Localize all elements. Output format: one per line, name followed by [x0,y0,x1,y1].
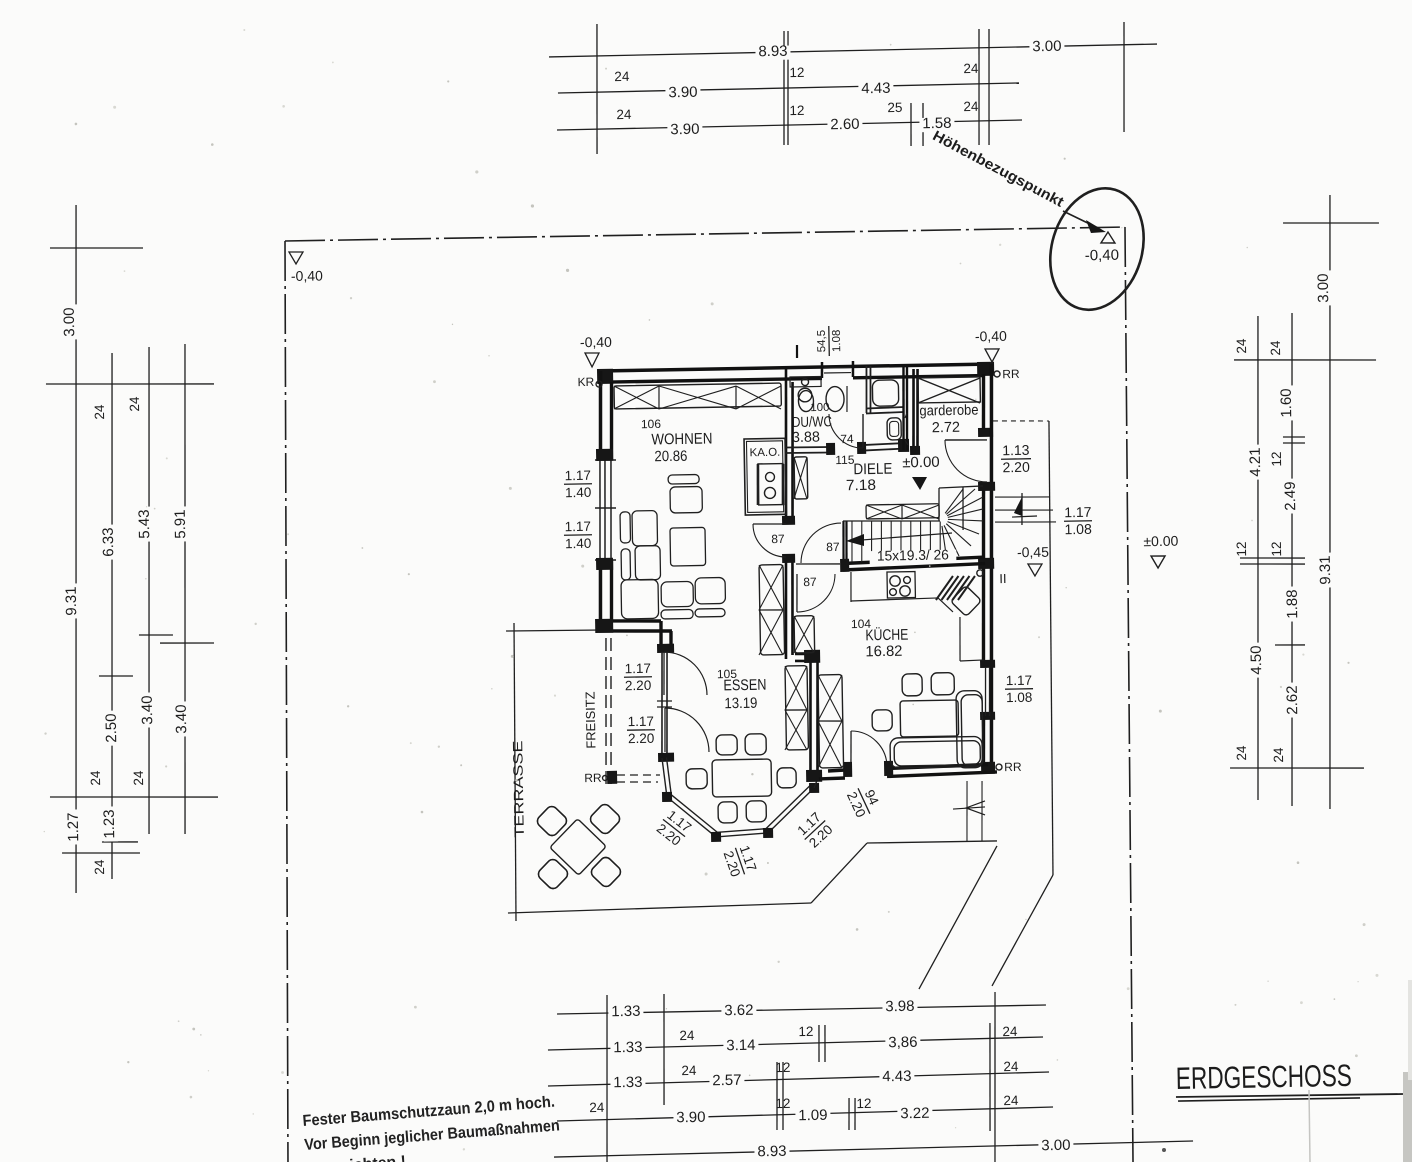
svg-text:1.17: 1.17 [1006,673,1033,688]
svg-text:1.17: 1.17 [565,519,592,534]
svg-text:24: 24 [614,69,630,84]
svg-text:74: 74 [840,432,854,446]
svg-text:6.33: 6.33 [100,527,118,556]
svg-text:20.86: 20.86 [654,448,687,466]
svg-text:24: 24 [131,770,146,786]
svg-text:54,5: 54,5 [816,330,828,353]
svg-text:1.27: 1.27 [65,812,83,841]
svg-text:-0,40: -0,40 [291,267,323,284]
svg-text:-0,45: -0,45 [1017,544,1049,561]
svg-text:KR: KR [577,375,594,389]
svg-text:106: 106 [641,417,662,431]
svg-text:24: 24 [1234,745,1249,761]
svg-text:13.19: 13.19 [724,695,757,713]
svg-text:9.31: 9.31 [1317,555,1335,584]
svg-text:TERRASSE: TERRASSE [510,740,527,837]
svg-text:3.40: 3.40 [173,704,191,733]
svg-text:87: 87 [771,532,785,546]
svg-text:3,86: 3,86 [888,1034,917,1052]
svg-text:9.31: 9.31 [63,586,81,615]
svg-text:4.21: 4.21 [1247,447,1265,476]
svg-text:1.23: 1.23 [101,809,119,838]
svg-text:3.00: 3.00 [1041,1137,1070,1155]
svg-text:24: 24 [1271,747,1286,763]
svg-text:1.88: 1.88 [1284,589,1302,618]
svg-text:2.20: 2.20 [625,678,652,693]
svg-text:15x19.3/ 26: 15x19.3/ 26 [877,546,949,563]
svg-text:3.00: 3.00 [1032,38,1061,56]
svg-text:3.40: 3.40 [139,695,157,724]
svg-text:87: 87 [826,540,840,554]
svg-text:DU/WC: DU/WC [792,414,832,431]
svg-text:1.17: 1.17 [565,468,592,483]
svg-text:25: 25 [887,100,902,115]
svg-text:1.17: 1.17 [1064,504,1092,520]
svg-text:24: 24 [1002,1024,1018,1039]
svg-text:1.17: 1.17 [625,661,652,676]
svg-text:24: 24 [616,107,632,122]
svg-text:ERDGESCHOSS: ERDGESCHOSS [1176,1058,1353,1096]
svg-text:12: 12 [856,1096,871,1111]
svg-text:-0,40: -0,40 [580,334,612,351]
svg-text:1.60: 1.60 [1278,388,1296,417]
svg-text:7.18: 7.18 [846,477,876,495]
svg-text:87: 87 [803,575,817,589]
svg-text:115: 115 [835,453,855,467]
svg-text:3.90: 3.90 [670,121,699,139]
svg-text:1.33: 1.33 [613,1039,642,1057]
svg-text:2.49: 2.49 [1282,481,1300,510]
svg-text:3.98: 3.98 [885,998,914,1016]
svg-text:2.72: 2.72 [932,420,961,436]
svg-text:KÜCHE: KÜCHE [865,626,908,645]
svg-text:12: 12 [1234,541,1249,556]
svg-text:II: II [999,571,1006,586]
svg-text:12: 12 [789,103,804,118]
svg-text:12: 12 [1269,541,1284,556]
svg-text:24: 24 [92,404,107,420]
svg-text:3.00: 3.00 [1315,273,1333,302]
svg-text:12: 12 [789,65,804,80]
svg-text:1.40: 1.40 [565,485,592,500]
svg-text:1.13: 1.13 [1002,442,1030,458]
svg-text:1.33: 1.33 [611,1003,640,1021]
svg-text:12: 12 [775,1096,790,1111]
svg-text:24: 24 [1234,338,1249,354]
svg-text:3.22: 3.22 [900,1105,929,1123]
svg-text:16.82: 16.82 [865,643,902,661]
svg-text:3.62: 3.62 [724,1002,753,1020]
svg-text:3.88: 3.88 [792,429,820,445]
svg-text:1.08: 1.08 [1064,521,1092,537]
svg-text:RR: RR [1004,760,1022,774]
svg-text:24: 24 [1268,340,1283,356]
svg-text:DIELE: DIELE [853,461,892,479]
svg-text:100: 100 [810,402,829,414]
svg-text:RR: RR [1002,367,1020,381]
svg-text:24: 24 [681,1063,697,1078]
svg-text:1.09: 1.09 [798,1107,827,1125]
svg-text:4.50: 4.50 [1248,645,1266,674]
svg-text:1.40: 1.40 [565,536,592,551]
svg-text:ESSEN: ESSEN [723,677,766,695]
svg-text:24: 24 [963,61,979,76]
svg-text:4.43: 4.43 [882,1068,911,1086]
svg-text:24: 24 [963,99,979,114]
svg-text:24: 24 [1003,1059,1019,1074]
svg-text:24: 24 [92,859,107,875]
svg-text:3.90: 3.90 [676,1109,705,1127]
svg-text:24: 24 [88,770,103,786]
svg-text:1.08: 1.08 [831,330,843,353]
svg-text:RR: RR [584,771,602,785]
svg-text:-0,40: -0,40 [1085,247,1119,265]
svg-text:12: 12 [775,1060,790,1075]
svg-text:5.43: 5.43 [136,509,154,538]
svg-text:2.62: 2.62 [1284,685,1302,714]
svg-text:garderobe: garderobe [919,403,978,420]
svg-text:1.08: 1.08 [1006,690,1033,705]
svg-text:2.60: 2.60 [830,116,859,134]
svg-text:24: 24 [589,1100,605,1115]
svg-text:12: 12 [1269,451,1284,466]
svg-text:1.17: 1.17 [628,714,655,729]
svg-text:8.93: 8.93 [758,43,787,61]
svg-text:KA.O.: KA.O. [750,447,781,460]
svg-text:24: 24 [127,396,142,412]
svg-text:24: 24 [679,1028,695,1043]
svg-text:±0.00: ±0.00 [902,454,940,472]
svg-text:3.00: 3.00 [61,307,79,336]
svg-text:3.90: 3.90 [668,84,697,102]
svg-text:1.33: 1.33 [613,1074,642,1092]
svg-text:2.20: 2.20 [628,731,655,746]
svg-text:4.43: 4.43 [861,80,890,98]
svg-text:24: 24 [1003,1093,1019,1108]
svg-text:FREISITZ: FREISITZ [583,691,599,748]
svg-text:3.14: 3.14 [726,1037,755,1055]
svg-text:8.93: 8.93 [757,1143,786,1161]
svg-text:WOHNEN: WOHNEN [651,430,712,448]
svg-text:2.20: 2.20 [1002,459,1030,475]
svg-text:5.91: 5.91 [172,509,190,538]
svg-text:±0.00: ±0.00 [1143,533,1178,550]
svg-text:2.50: 2.50 [103,713,121,742]
svg-text:2.57: 2.57 [712,1072,741,1090]
svg-text:12: 12 [798,1024,813,1039]
svg-text:-0,40: -0,40 [975,328,1007,345]
